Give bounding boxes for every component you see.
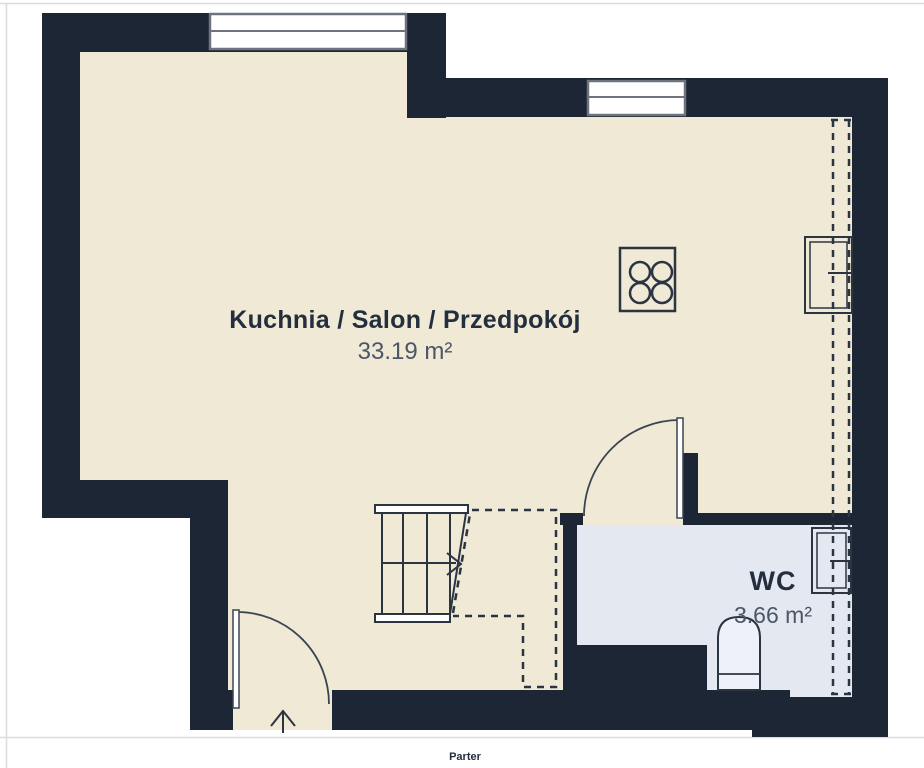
main-room-name: Kuchnia / Salon / Przedpokój — [115, 306, 695, 335]
window-icon — [588, 81, 685, 115]
wc-room-area: 3.66 m² — [693, 602, 853, 628]
floor-plan-drawing — [0, 0, 924, 768]
main-room-area: 33.19 m² — [115, 338, 695, 366]
wc-room-name: WC — [693, 566, 853, 597]
floor-label: Parter — [385, 751, 545, 764]
window-icon — [210, 14, 406, 49]
floor-plan: Kuchnia / Salon / Przedpokój 33.19 m² WC… — [0, 0, 924, 768]
